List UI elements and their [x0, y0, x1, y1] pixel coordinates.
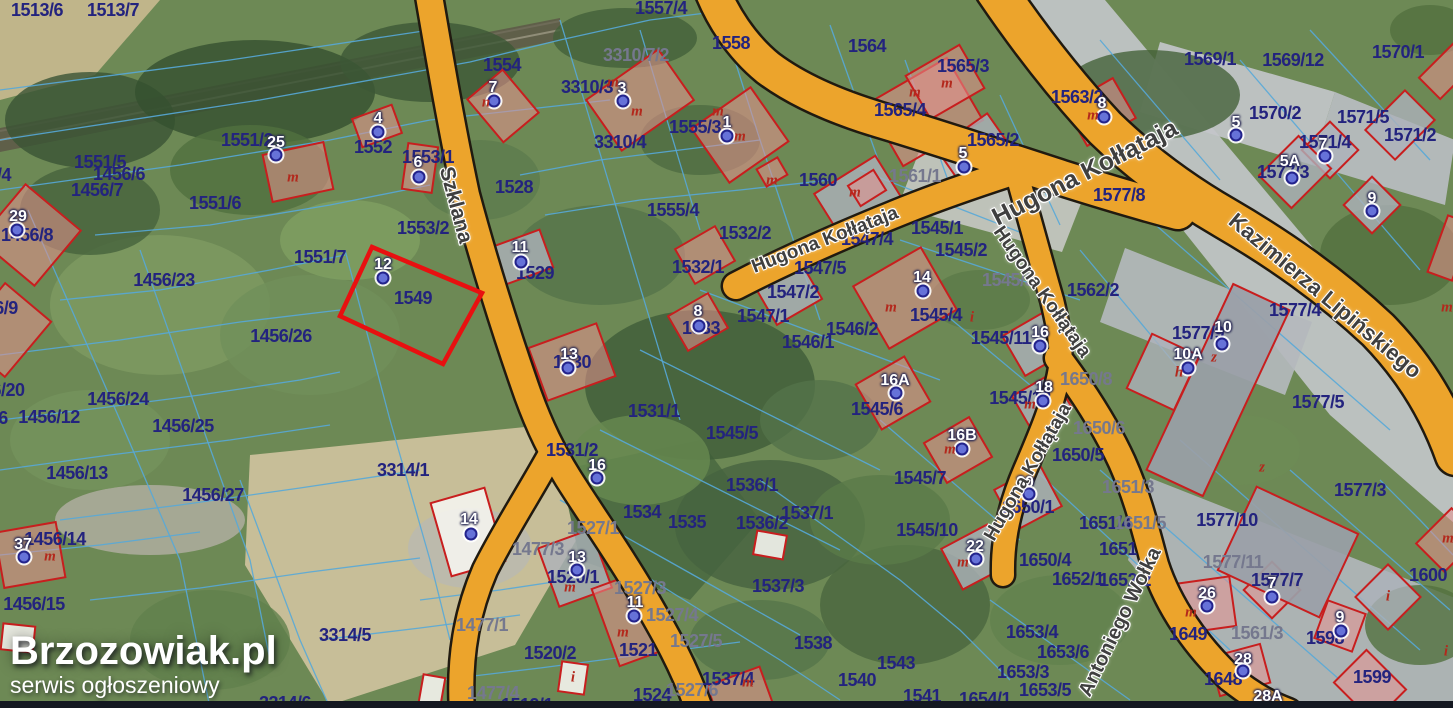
building-number-label: 10 — [1214, 320, 1232, 336]
parcel-label: 1540 — [838, 671, 876, 689]
building-number-label: 8 — [694, 304, 703, 320]
building-marker-dot — [465, 528, 478, 541]
parcel-label: 1555/3 — [669, 118, 721, 136]
cadastral-map[interactable]: 1513/61513/71551/215521553/115541557/415… — [0, 0, 1453, 708]
building-marker-dot — [591, 472, 604, 485]
parcel-label: 1577/4 — [1269, 301, 1321, 319]
parcel-label: 1545/2 — [935, 241, 987, 259]
building-marker-dot — [1201, 600, 1214, 613]
building-marker-dot — [270, 149, 283, 162]
building-marker-dot — [917, 285, 930, 298]
building-number-label: 6 — [414, 155, 423, 171]
parcel-label: 1653/3 — [997, 663, 1049, 681]
parcel-label: 1650/8 — [1060, 370, 1112, 388]
building-use-letter: m — [766, 174, 778, 189]
building-use-letter: i — [1444, 645, 1448, 660]
parcel-label: 1477/1 — [456, 616, 508, 634]
parcel-label: 1562/2 — [1067, 281, 1119, 299]
building-marker-dot — [617, 95, 630, 108]
parcel-label: 1651/3 — [1102, 478, 1154, 496]
parcel-label: 1538 — [794, 634, 832, 652]
parcel-label: 1554 — [483, 56, 521, 74]
building-marker-dot — [372, 126, 385, 139]
building-marker-dot — [1037, 395, 1050, 408]
building-number-label: 11 — [512, 240, 529, 256]
parcel-label: 1570/2 — [1249, 104, 1301, 122]
building-marker-dot — [11, 224, 24, 237]
building-marker-dot — [970, 553, 983, 566]
parcel-label: 1563/2 — [1051, 88, 1103, 106]
parcel-label: 1553/1 — [402, 148, 454, 166]
building-use-letter: m — [617, 626, 629, 641]
parcel-label: 1545/1 — [911, 219, 963, 237]
parcel-label: 1545/6 — [851, 400, 903, 418]
parcel-label: 1651/5 — [1114, 514, 1166, 532]
building-marker-dot — [1319, 150, 1332, 163]
building-use-letter: m — [1185, 606, 1197, 621]
building-use-letter: m — [957, 556, 969, 571]
building-marker-dot — [1098, 111, 1111, 124]
parcel-label: 1456/8 — [1, 226, 53, 244]
parcel-label: 1456/12 — [18, 408, 80, 426]
parcel-label: 1565/4 — [874, 101, 926, 119]
parcel-label: 3314/1 — [377, 461, 429, 479]
parcel-label: 1650/4 — [1019, 551, 1071, 569]
building-marker-dot — [1286, 172, 1299, 185]
building-marker-dot — [413, 171, 426, 184]
parcel-label: 1531/1 — [628, 402, 680, 420]
parcel-label: 1545/7 — [894, 469, 946, 487]
building-use-letter: m — [631, 105, 643, 120]
building-use-letter: h — [1175, 366, 1183, 381]
parcel-label: 1456/7 — [71, 181, 123, 199]
parcel-label: 1521 — [619, 641, 657, 659]
parcel-label: 6 — [0, 409, 8, 427]
parcel-label: 1513/6 — [11, 1, 63, 19]
parcel-label: 1599 — [1353, 668, 1391, 686]
parcel-label: 1564 — [848, 37, 886, 55]
parcel-label: 1545/4 — [910, 306, 962, 324]
parcel-label: 1456/13 — [46, 464, 108, 482]
building-marker-dot — [1182, 362, 1195, 375]
parcel-label: 1456/26 — [250, 327, 312, 345]
building-use-letter: m — [287, 171, 299, 186]
parcel-label: 1549 — [394, 289, 432, 307]
building-marker-dot — [628, 610, 641, 623]
parcel-label: 1571/2 — [1384, 126, 1436, 144]
building-marker-dot — [515, 256, 528, 269]
street-label: Hugona Kołłątaja — [981, 400, 1075, 544]
parcel-label: 1527/5 — [670, 632, 722, 650]
building-use-letter: m — [712, 105, 724, 120]
building-marker-dot — [1366, 205, 1379, 218]
parcel-label: 1545/5 — [706, 424, 758, 442]
parcel-label: 1520/2 — [524, 644, 576, 662]
building-marker-dot — [377, 272, 390, 285]
parcel-label: 1551/2 — [221, 131, 273, 149]
parcel-label: 1650/6 — [1073, 419, 1125, 437]
parcel-label: 1547/2 — [767, 283, 819, 301]
building-marker-dot — [890, 387, 903, 400]
parcel-label: 1532/1 — [672, 258, 724, 276]
building-use-letter: m — [1442, 532, 1453, 547]
parcel-label: /4 — [0, 166, 11, 184]
building-use-letter: m — [1087, 109, 1099, 124]
parcel-label: 1650/5 — [1052, 446, 1104, 464]
parcel-label: 1577/10 — [1196, 511, 1258, 529]
parcel-label: 1557/4 — [635, 0, 687, 17]
parcel-label: 1560 — [799, 171, 837, 189]
parcel-label: 1551/7 — [294, 248, 346, 266]
parcel-label: 1569/12 — [1262, 51, 1324, 69]
building-marker-dot — [1034, 340, 1047, 353]
parcel-label: 3310/4 — [594, 133, 646, 151]
building-marker-dot — [571, 564, 584, 577]
building-number-label: 14 — [460, 512, 478, 528]
parcel-label: 1456/15 — [3, 595, 65, 613]
parcel-label: 1600 — [1409, 566, 1447, 584]
building-marker-dot — [18, 551, 31, 564]
parcel-label: 1456/27 — [182, 486, 244, 504]
parcel-label: 1535 — [668, 513, 706, 531]
building-use-letter: m — [607, 76, 619, 91]
map-annotations: 1513/61513/71551/215521553/115541557/415… — [0, 0, 1453, 708]
parcel-label: 1456/14 — [24, 530, 86, 548]
parcel-label: 1577/11 — [1203, 553, 1264, 571]
parcel-label: 1577/8 — [1093, 186, 1145, 204]
parcel-label: 1456/23 — [133, 271, 195, 289]
parcel-label: 1547/5 — [794, 259, 846, 277]
parcel-label: 1545/11 — [971, 329, 1032, 347]
parcel-label: 1551/6 — [189, 194, 241, 212]
parcel-label: 1534 — [623, 503, 661, 521]
parcel-label: 1570/1 — [1372, 43, 1424, 61]
bottom-edge-bar — [0, 701, 1453, 708]
building-use-letter: m — [564, 581, 576, 596]
parcel-label: 1653/4 — [1006, 623, 1058, 641]
parcel-label: 1651 — [1099, 540, 1137, 558]
building-use-letter: z — [1211, 351, 1217, 366]
building-use-letter: m — [885, 301, 897, 316]
parcel-label: 1456/24 — [87, 390, 149, 408]
building-number-label: 5A — [1280, 154, 1300, 170]
parcel-label: 1553/2 — [397, 219, 449, 237]
building-use-letter: m — [1441, 301, 1453, 316]
parcel-label: 1545/10 — [896, 521, 958, 539]
parcel-label: 1477/3 — [512, 540, 564, 558]
parcel-label: 6/9 — [0, 299, 18, 317]
building-use-letter: m — [1024, 398, 1036, 413]
parcel-label: 1565/2 — [967, 131, 1019, 149]
building-use-letter: m — [742, 676, 754, 691]
parcel-label: 1652/1 — [1052, 570, 1104, 588]
parcel-label: 1537/1 — [781, 504, 833, 522]
parcel-label: 1528 — [495, 178, 533, 196]
parcel-label: 1555/4 — [647, 201, 699, 219]
building-marker-dot — [1266, 591, 1279, 604]
parcel-label: 1569/1 — [1184, 50, 1236, 68]
parcel-label: 6/20 — [0, 381, 25, 399]
building-use-letter: n — [482, 96, 490, 111]
parcel-label: 1543 — [877, 654, 915, 672]
parcel-label: 1513/7 — [87, 1, 139, 19]
parcel-label: 1577/5 — [1292, 393, 1344, 411]
building-marker-dot — [693, 320, 706, 333]
building-marker-dot — [956, 443, 969, 456]
building-marker-dot — [721, 130, 734, 143]
parcel-label: 1653/6 — [1037, 643, 1089, 661]
building-marker-dot — [562, 362, 575, 375]
parcel-label: 1527/4 — [646, 606, 698, 624]
building-marker-dot — [1230, 129, 1243, 142]
building-use-letter: z — [1259, 461, 1265, 476]
parcel-label: 1536/1 — [726, 476, 778, 494]
parcel-label: 1561/1 — [889, 167, 941, 185]
building-use-letter: i — [970, 311, 974, 326]
parcel-label: 1649 — [1169, 625, 1207, 643]
street-label: Antoniego Wołka — [1075, 544, 1164, 699]
building-use-letter: m — [44, 550, 56, 565]
parcel-label: 1561/3 — [1231, 624, 1283, 642]
parcel-label: 1653/5 — [1019, 681, 1071, 699]
parcel-label: 3314/5 — [319, 626, 371, 644]
parcel-label: 1558 — [712, 34, 750, 52]
building-use-letter: m — [941, 77, 953, 92]
building-use-letter: m — [944, 443, 956, 458]
building-marker-dot — [1335, 625, 1348, 638]
parcel-label: 3310/7/2 — [603, 46, 669, 64]
parcel-label: 1571/5 — [1337, 108, 1389, 126]
building-use-letter: i — [1386, 590, 1390, 605]
parcel-label: 3310/3 — [561, 78, 613, 96]
parcel-label: 1456/25 — [152, 417, 214, 435]
parcel-label: 1547/1 — [737, 307, 789, 325]
parcel-label: 1577/7 — [1251, 571, 1303, 589]
parcel-label: 1552 — [354, 138, 392, 156]
building-use-letter: m — [909, 86, 921, 101]
parcel-label: 1565/3 — [937, 57, 989, 75]
building-marker-dot — [958, 161, 971, 174]
building-use-letter: i — [571, 671, 575, 686]
building-use-letter: m — [849, 186, 861, 201]
building-use-letter: m — [734, 130, 746, 145]
parcel-label: 1577/3 — [1334, 481, 1386, 499]
building-marker-dot — [1216, 338, 1229, 351]
building-marker-dot — [1237, 665, 1250, 678]
parcel-label: 1537/3 — [752, 577, 804, 595]
parcel-label: 1546/1 — [782, 333, 834, 351]
street-label: Kazimierza Lipińskiego — [1225, 209, 1426, 382]
parcel-label: 1527/1 — [567, 519, 619, 537]
parcel-label: 1532/2 — [719, 224, 771, 242]
